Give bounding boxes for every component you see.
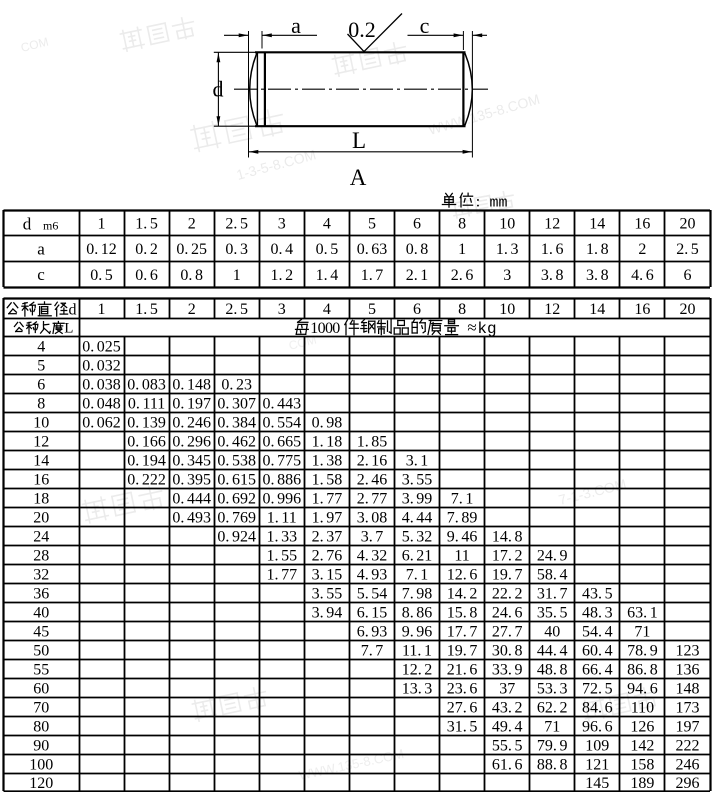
- svg-text:71: 71: [634, 623, 650, 640]
- svg-text:84.6: 84.6: [582, 699, 613, 716]
- svg-text:1: 1: [98, 215, 106, 232]
- svg-text:48.8: 48.8: [537, 661, 568, 678]
- svg-text:0.2: 0.2: [348, 17, 376, 42]
- svg-text:28: 28: [33, 548, 49, 565]
- svg-text:2: 2: [188, 215, 196, 232]
- svg-text:63.1: 63.1: [627, 605, 658, 622]
- svg-text:A: A: [350, 165, 367, 190]
- svg-text:2.16: 2.16: [357, 453, 388, 470]
- svg-text:m6: m6: [43, 219, 58, 233]
- svg-text:d: d: [69, 302, 77, 319]
- svg-text:49.4: 49.4: [492, 718, 523, 735]
- svg-text:18: 18: [33, 491, 49, 508]
- svg-text:12: 12: [544, 301, 560, 318]
- svg-text:1.6: 1.6: [541, 241, 564, 258]
- svg-text:1.3: 1.3: [496, 241, 519, 258]
- svg-text:0.665: 0.665: [263, 434, 302, 451]
- svg-text:5.32: 5.32: [402, 529, 433, 546]
- svg-text:3.1: 3.1: [406, 453, 429, 470]
- svg-text:0.924: 0.924: [217, 529, 256, 546]
- svg-text:0.8: 0.8: [180, 267, 203, 284]
- svg-text:1.55: 1.55: [267, 548, 298, 565]
- svg-text:3.8: 3.8: [541, 267, 564, 284]
- svg-text:8: 8: [458, 301, 466, 318]
- svg-text:14: 14: [589, 301, 605, 318]
- svg-text:78.9: 78.9: [627, 642, 658, 659]
- svg-text:11.1: 11.1: [402, 642, 432, 659]
- svg-text:6.93: 6.93: [357, 623, 388, 640]
- svg-text:96.6: 96.6: [582, 718, 613, 735]
- svg-text:158: 158: [630, 756, 654, 773]
- svg-text:0.395: 0.395: [172, 472, 211, 489]
- svg-text:0.554: 0.554: [263, 415, 302, 432]
- svg-text:50: 50: [33, 642, 49, 659]
- svg-text:86.8: 86.8: [627, 661, 658, 678]
- svg-text:126: 126: [630, 718, 654, 735]
- svg-text:27.6: 27.6: [447, 699, 478, 716]
- svg-text:2.46: 2.46: [357, 472, 388, 489]
- svg-text:1000: 1000: [310, 320, 340, 337]
- svg-text:14: 14: [589, 215, 605, 232]
- svg-text:4.6: 4.6: [631, 267, 654, 284]
- svg-text:24.6: 24.6: [492, 605, 523, 622]
- svg-text:0.083: 0.083: [127, 377, 166, 394]
- svg-text:45: 45: [33, 623, 49, 640]
- svg-text:121: 121: [585, 756, 609, 773]
- svg-text:3.99: 3.99: [402, 491, 433, 508]
- svg-text:10: 10: [33, 415, 49, 432]
- svg-text:43.2: 43.2: [492, 699, 523, 716]
- svg-text:0.5: 0.5: [90, 267, 113, 284]
- svg-text:3.55: 3.55: [402, 472, 433, 489]
- svg-text:d: d: [23, 215, 32, 234]
- svg-text:5: 5: [37, 358, 45, 375]
- svg-text:21.6: 21.6: [447, 661, 478, 678]
- svg-text:9.46: 9.46: [447, 529, 478, 546]
- svg-text:kg: kg: [477, 320, 496, 338]
- svg-text:6: 6: [37, 377, 45, 394]
- svg-text:66.4: 66.4: [582, 661, 613, 678]
- svg-text:d: d: [213, 77, 224, 102]
- svg-text:55.5: 55.5: [492, 737, 523, 754]
- svg-text:14: 14: [33, 453, 49, 470]
- svg-text:2.6: 2.6: [451, 267, 474, 284]
- svg-text:6.15: 6.15: [357, 605, 388, 622]
- svg-text:1: 1: [233, 267, 241, 284]
- svg-text:c: c: [420, 13, 430, 38]
- svg-text:35.5: 35.5: [537, 605, 568, 622]
- svg-text:33.9: 33.9: [492, 661, 523, 678]
- svg-text:4.93: 4.93: [357, 567, 388, 584]
- svg-text:0.462: 0.462: [217, 434, 256, 451]
- svg-text:7.89: 7.89: [447, 510, 478, 527]
- svg-text:a: a: [291, 13, 301, 38]
- svg-text:0.615: 0.615: [217, 472, 256, 489]
- svg-text:72.5: 72.5: [582, 680, 613, 697]
- svg-text:20: 20: [680, 301, 696, 318]
- svg-text:145: 145: [585, 775, 609, 792]
- svg-text:79.9: 79.9: [537, 737, 568, 754]
- svg-text:0.692: 0.692: [217, 491, 256, 508]
- svg-text:8.86: 8.86: [402, 605, 433, 622]
- svg-text:3.8: 3.8: [586, 267, 609, 284]
- svg-text:246: 246: [676, 756, 700, 773]
- svg-text:0.025: 0.025: [82, 339, 121, 356]
- svg-text:3: 3: [278, 215, 286, 232]
- svg-text:27.7: 27.7: [492, 623, 523, 640]
- svg-text:20: 20: [680, 215, 696, 232]
- svg-text:2.1: 2.1: [406, 267, 429, 284]
- svg-text:1.58: 1.58: [312, 472, 343, 489]
- svg-text:1.38: 1.38: [312, 453, 343, 470]
- svg-text:3.08: 3.08: [357, 510, 388, 527]
- svg-text:6: 6: [684, 267, 692, 284]
- svg-text:1.85: 1.85: [357, 434, 388, 451]
- svg-text:0.775: 0.775: [263, 453, 302, 470]
- svg-text:100: 100: [29, 756, 53, 773]
- svg-text:37: 37: [499, 680, 515, 697]
- svg-text:7.7: 7.7: [361, 642, 384, 659]
- svg-text:16: 16: [634, 215, 650, 232]
- svg-text:222: 222: [676, 737, 700, 754]
- svg-text:109: 109: [585, 737, 609, 754]
- svg-text:32: 32: [33, 567, 49, 584]
- svg-text:36: 36: [33, 586, 49, 603]
- svg-text:3.55: 3.55: [312, 586, 343, 603]
- svg-text:88.8: 88.8: [537, 756, 568, 773]
- svg-text:6: 6: [413, 215, 421, 232]
- svg-text:120: 120: [29, 775, 53, 792]
- svg-text:14.2: 14.2: [447, 586, 478, 603]
- svg-text:2.5: 2.5: [676, 241, 699, 258]
- svg-text:31.7: 31.7: [537, 586, 568, 603]
- svg-text:0.8: 0.8: [406, 241, 429, 258]
- svg-text:13.3: 13.3: [402, 680, 433, 697]
- svg-text:16: 16: [33, 472, 49, 489]
- svg-text:53.3: 53.3: [537, 680, 568, 697]
- svg-text:62.2: 62.2: [537, 699, 568, 716]
- svg-text:1: 1: [98, 301, 106, 318]
- svg-text:148: 148: [676, 680, 700, 697]
- svg-text:1.77: 1.77: [312, 491, 343, 508]
- svg-text:2.76: 2.76: [312, 548, 343, 565]
- svg-text:94.6: 94.6: [627, 680, 658, 697]
- svg-text:L: L: [64, 321, 73, 337]
- svg-text:296: 296: [676, 775, 700, 792]
- svg-text:30.8: 30.8: [492, 642, 523, 659]
- svg-text:2.5: 2.5: [225, 215, 248, 232]
- svg-text:a: a: [37, 240, 45, 259]
- svg-text:6.21: 6.21: [402, 548, 433, 565]
- svg-text:14.8: 14.8: [492, 529, 523, 546]
- svg-text:1.7: 1.7: [361, 267, 384, 284]
- svg-text:0.038: 0.038: [82, 377, 121, 394]
- svg-text:1.33: 1.33: [267, 529, 298, 546]
- svg-text:48.3: 48.3: [582, 605, 613, 622]
- svg-text:8: 8: [458, 215, 466, 232]
- svg-text:10: 10: [499, 301, 515, 318]
- svg-text:197: 197: [676, 718, 700, 735]
- svg-text:2: 2: [638, 241, 646, 258]
- svg-text:2.5: 2.5: [225, 301, 248, 318]
- svg-text:19.7: 19.7: [447, 642, 478, 659]
- svg-text:12.6: 12.6: [447, 567, 478, 584]
- svg-text:10: 10: [499, 215, 515, 232]
- svg-text:9.96: 9.96: [402, 623, 433, 640]
- svg-text:24.9: 24.9: [537, 548, 568, 565]
- svg-text:0.197: 0.197: [172, 396, 211, 413]
- svg-text:4: 4: [37, 339, 45, 356]
- svg-text:0.111: 0.111: [128, 396, 165, 413]
- svg-text:1.2: 1.2: [271, 267, 294, 284]
- svg-text:22.2: 22.2: [492, 586, 523, 603]
- svg-text:3: 3: [503, 267, 511, 284]
- svg-text:12.2: 12.2: [402, 661, 433, 678]
- svg-text:0.5: 0.5: [316, 241, 339, 258]
- svg-text:11: 11: [454, 548, 469, 565]
- svg-text:5: 5: [368, 301, 376, 318]
- svg-text:2.37: 2.37: [312, 529, 343, 546]
- svg-text:0.98: 0.98: [312, 415, 343, 432]
- svg-text:15.8: 15.8: [447, 605, 478, 622]
- svg-text:1.18: 1.18: [312, 434, 343, 451]
- svg-text:142: 142: [630, 737, 654, 754]
- svg-text:80: 80: [33, 718, 49, 735]
- svg-text:0.384: 0.384: [217, 415, 256, 432]
- svg-text:6: 6: [413, 301, 421, 318]
- svg-text:7.1: 7.1: [451, 491, 474, 508]
- svg-text:0.493: 0.493: [172, 510, 211, 527]
- svg-text:8: 8: [37, 396, 45, 413]
- svg-text:3.7: 3.7: [361, 529, 384, 546]
- svg-text:2: 2: [188, 301, 196, 318]
- svg-text:3.15: 3.15: [312, 567, 343, 584]
- svg-text:0.148: 0.148: [172, 377, 211, 394]
- svg-text:2.77: 2.77: [357, 491, 388, 508]
- svg-text:0.296: 0.296: [172, 434, 211, 451]
- svg-text:0.222: 0.222: [127, 472, 166, 489]
- svg-text:58.4: 58.4: [537, 567, 568, 584]
- svg-text:≈: ≈: [467, 318, 476, 337]
- svg-text:0.63: 0.63: [357, 241, 388, 258]
- svg-text:1.4: 1.4: [316, 267, 339, 284]
- svg-text::: :: [476, 194, 480, 211]
- svg-text:0.538: 0.538: [217, 453, 256, 470]
- svg-text:0.769: 0.769: [217, 510, 256, 527]
- svg-text:0.4: 0.4: [271, 241, 294, 258]
- svg-text:1.5: 1.5: [135, 215, 158, 232]
- svg-text:0.166: 0.166: [127, 434, 166, 451]
- svg-text:19.7: 19.7: [492, 567, 523, 584]
- svg-text:0.048: 0.048: [82, 396, 121, 413]
- svg-text:7.1: 7.1: [406, 567, 429, 584]
- svg-text:17.2: 17.2: [492, 548, 523, 565]
- svg-text:0.345: 0.345: [172, 453, 211, 470]
- svg-text:5.54: 5.54: [357, 586, 388, 603]
- svg-text:12: 12: [544, 215, 560, 232]
- svg-text:0.443: 0.443: [263, 396, 302, 413]
- svg-text:1.11: 1.11: [267, 510, 297, 527]
- svg-text:71: 71: [544, 718, 560, 735]
- svg-text:43.5: 43.5: [582, 586, 613, 603]
- svg-text:40: 40: [33, 605, 49, 622]
- svg-text:L: L: [352, 128, 366, 153]
- svg-text:3: 3: [278, 301, 286, 318]
- svg-text:1.8: 1.8: [586, 241, 609, 258]
- svg-text:4.32: 4.32: [357, 548, 388, 565]
- svg-text:c: c: [37, 265, 45, 284]
- svg-text:173: 173: [676, 699, 700, 716]
- svg-text:0.062: 0.062: [82, 415, 121, 432]
- svg-text:1: 1: [458, 241, 466, 258]
- svg-text:1.97: 1.97: [312, 510, 343, 527]
- svg-text:20: 20: [33, 510, 49, 527]
- svg-text:0.032: 0.032: [82, 358, 121, 375]
- svg-text:4: 4: [323, 215, 331, 232]
- svg-text:4.44: 4.44: [402, 510, 433, 527]
- svg-text:mm: mm: [490, 195, 508, 212]
- svg-text:5: 5: [368, 215, 376, 232]
- svg-text:0.444: 0.444: [172, 491, 211, 508]
- svg-text:60: 60: [33, 680, 49, 697]
- svg-text:40: 40: [544, 623, 560, 640]
- svg-text:0.2: 0.2: [135, 241, 158, 258]
- svg-text:189: 189: [630, 775, 654, 792]
- svg-text:12: 12: [33, 434, 49, 451]
- svg-text:60.4: 60.4: [582, 642, 613, 659]
- svg-text:90: 90: [33, 737, 49, 754]
- svg-text:17.7: 17.7: [447, 623, 478, 640]
- svg-text:7.98: 7.98: [402, 586, 433, 603]
- svg-text:16: 16: [634, 301, 650, 318]
- svg-text:0.886: 0.886: [263, 472, 302, 489]
- svg-text:54.4: 54.4: [582, 623, 613, 640]
- svg-text:70: 70: [33, 699, 49, 716]
- svg-text:0.996: 0.996: [263, 491, 302, 508]
- svg-text:55: 55: [33, 661, 49, 678]
- svg-text:0.194: 0.194: [127, 453, 166, 470]
- svg-text:0.23: 0.23: [221, 377, 252, 394]
- svg-text:24: 24: [33, 529, 49, 546]
- svg-text:61.6: 61.6: [492, 756, 523, 773]
- svg-text:1.5: 1.5: [135, 301, 158, 318]
- svg-text:0.307: 0.307: [217, 396, 256, 413]
- svg-text:23.6: 23.6: [447, 680, 478, 697]
- svg-text:4: 4: [323, 301, 331, 318]
- svg-text:136: 136: [676, 661, 700, 678]
- svg-text:44.4: 44.4: [537, 642, 568, 659]
- svg-text:31.5: 31.5: [447, 718, 478, 735]
- svg-text:0.6: 0.6: [135, 267, 158, 284]
- svg-text:0.25: 0.25: [176, 241, 207, 258]
- svg-text:3.94: 3.94: [312, 605, 343, 622]
- svg-text:110: 110: [631, 699, 654, 716]
- svg-text:0.246: 0.246: [172, 415, 211, 432]
- svg-text:0.12: 0.12: [86, 241, 117, 258]
- svg-text:123: 123: [676, 642, 700, 659]
- svg-text:0.3: 0.3: [225, 241, 248, 258]
- svg-text:0.139: 0.139: [127, 415, 166, 432]
- svg-text:1.77: 1.77: [267, 567, 298, 584]
